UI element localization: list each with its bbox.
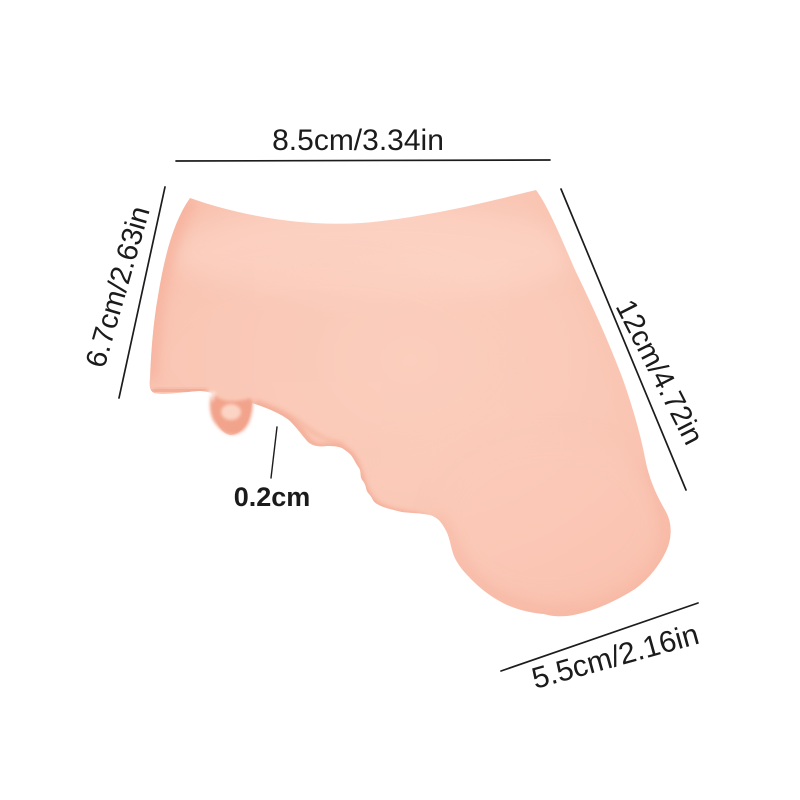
- svg-text:5.5cm/2.16in: 5.5cm/2.16in: [528, 618, 702, 696]
- svg-text:6.7cm/2.63in: 6.7cm/2.63in: [80, 203, 157, 371]
- svg-text:0.2cm: 0.2cm: [234, 482, 311, 512]
- svg-text:8.5cm/3.34in: 8.5cm/3.34in: [272, 124, 444, 157]
